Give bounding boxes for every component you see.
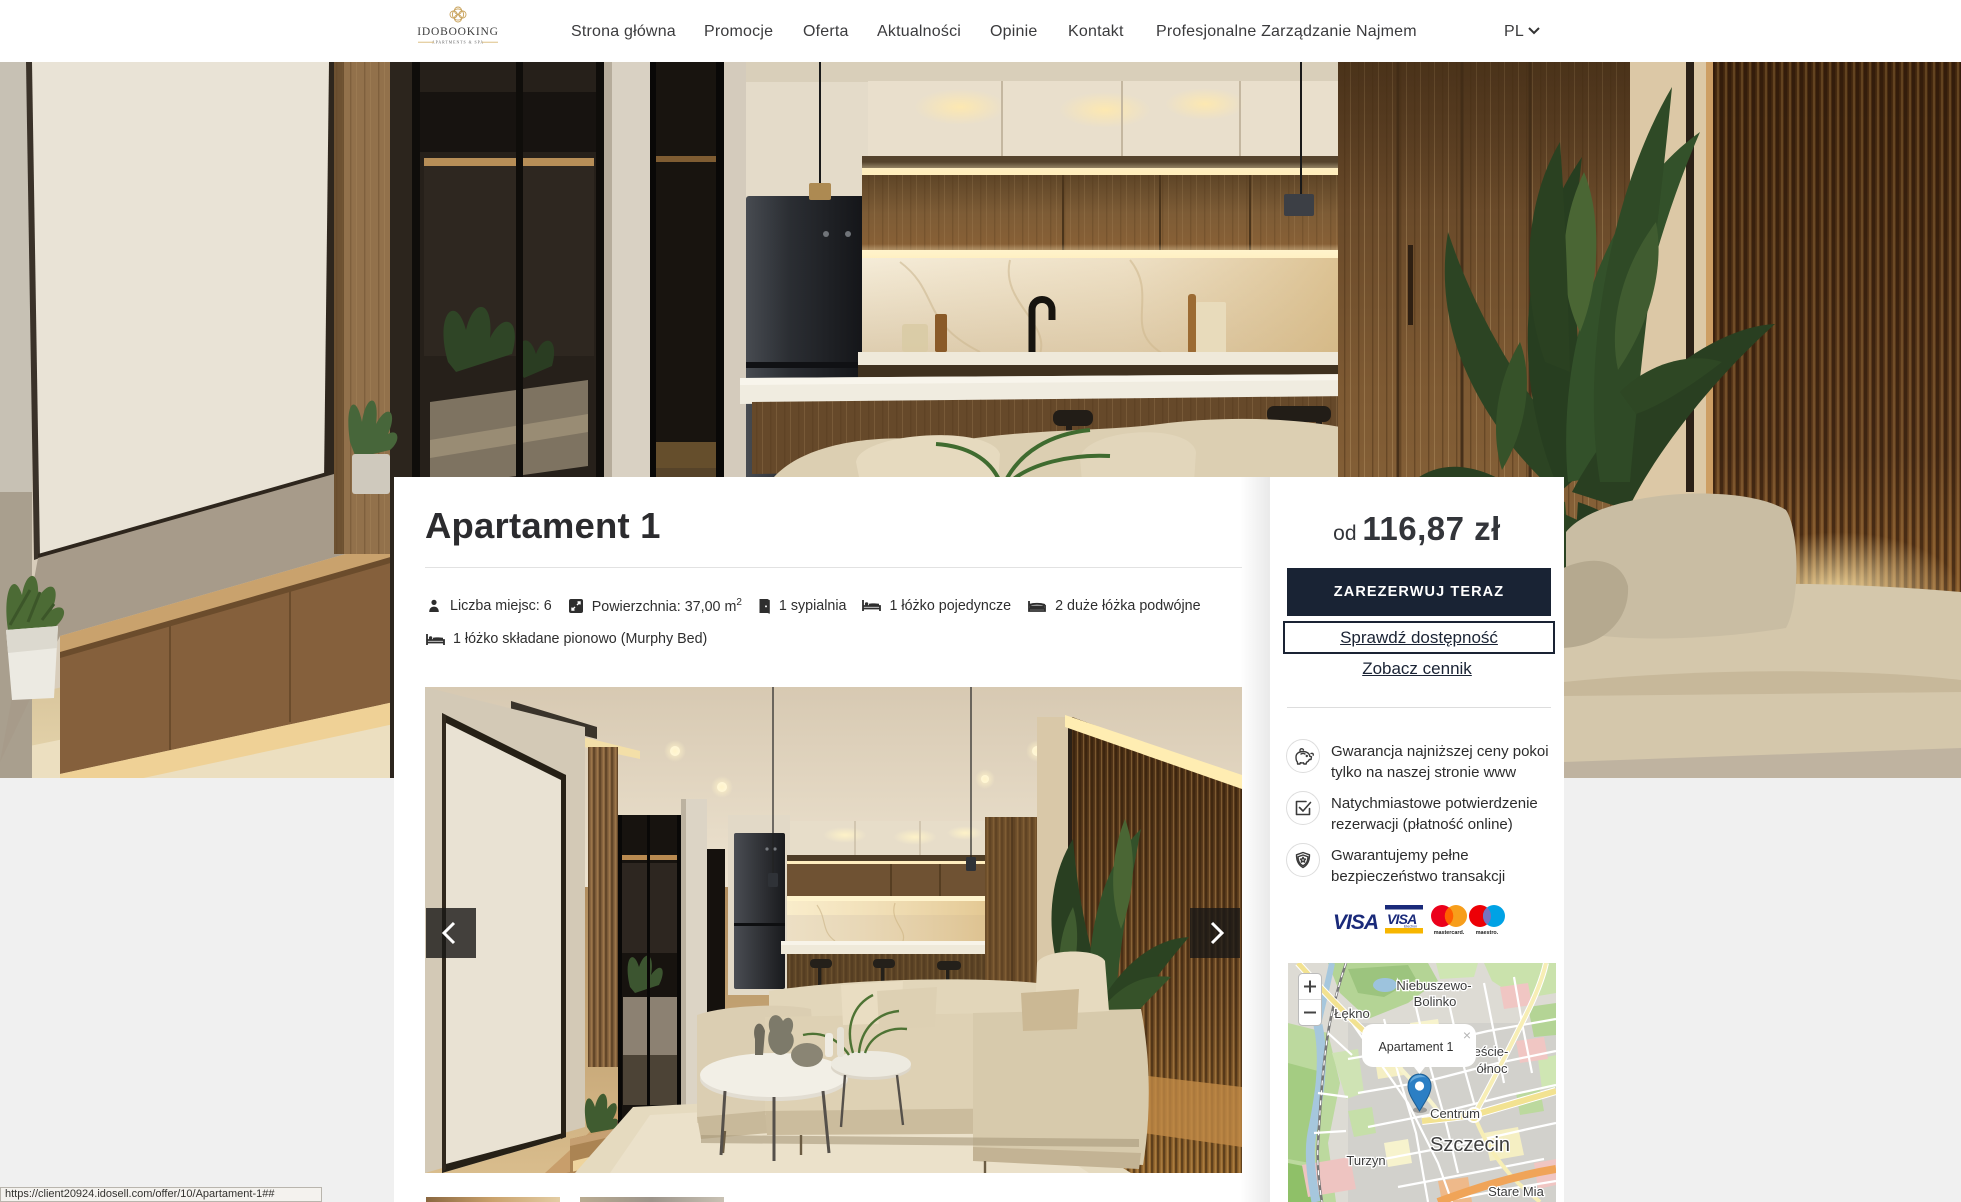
svg-text:eście-: eście-	[1474, 1044, 1509, 1059]
svg-text:ółnoc: ółnoc	[1476, 1061, 1508, 1076]
svg-text:Electron: Electron	[1404, 925, 1417, 929]
svg-text:Stare Mia: Stare Mia	[1488, 1184, 1544, 1199]
svg-text:APARTMENTS & SPA: APARTMENTS & SPA	[432, 41, 484, 45]
svg-text:VISA: VISA	[1333, 911, 1378, 934]
svg-text:Apartament 1: Apartament 1	[1378, 1040, 1453, 1054]
svg-text:Łękno: Łękno	[1334, 1006, 1369, 1021]
svg-text:Centrum: Centrum	[1430, 1106, 1480, 1121]
svg-text:mastercard.: mastercard.	[1434, 930, 1465, 936]
svg-text:Niebuszewo-: Niebuszewo-	[1396, 978, 1471, 993]
svg-text:Bolinko: Bolinko	[1414, 994, 1457, 1009]
svg-text:Turzyn: Turzyn	[1346, 1153, 1385, 1168]
svg-text:Szczecin: Szczecin	[1430, 1134, 1510, 1156]
svg-text:IDOBOOKING: IDOBOOKING	[417, 26, 498, 38]
svg-text:maestro.: maestro.	[1476, 930, 1499, 936]
svg-text:×: ×	[1463, 1027, 1471, 1043]
